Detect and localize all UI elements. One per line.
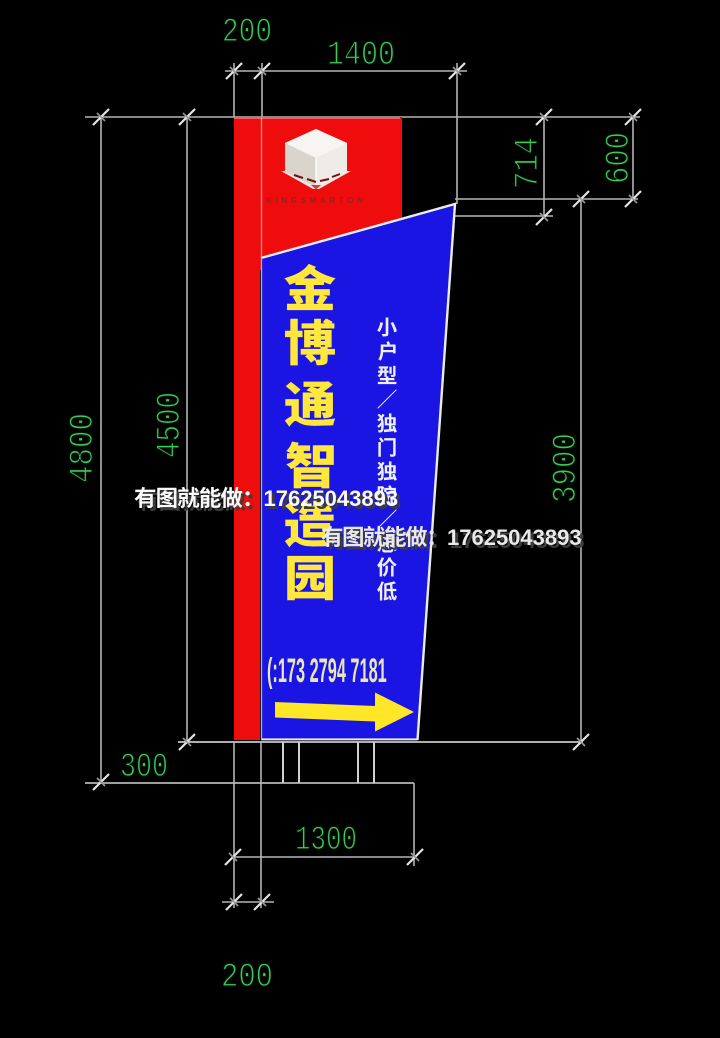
- svg-text:714: 714: [510, 137, 548, 189]
- svg-text:600: 600: [601, 132, 639, 184]
- svg-text:4800: 4800: [65, 413, 103, 483]
- svg-text:1400: 1400: [327, 37, 395, 75]
- svg-text:3900: 3900: [548, 433, 586, 503]
- svg-text:300: 300: [120, 749, 168, 787]
- svg-text:200: 200: [222, 14, 272, 52]
- svg-text:200: 200: [221, 959, 273, 997]
- svg-text:1300: 1300: [295, 822, 357, 860]
- svg-text:17625043893: 17625043893: [264, 486, 399, 511]
- svg-text:17625043893: 17625043893: [447, 525, 582, 550]
- svg-text:4500: 4500: [152, 392, 190, 458]
- svg-text:KINGSMARTON: KINGSMARTON: [266, 196, 366, 205]
- svg-text:(:173 2794 7181: (:173 2794 7181: [267, 651, 387, 689]
